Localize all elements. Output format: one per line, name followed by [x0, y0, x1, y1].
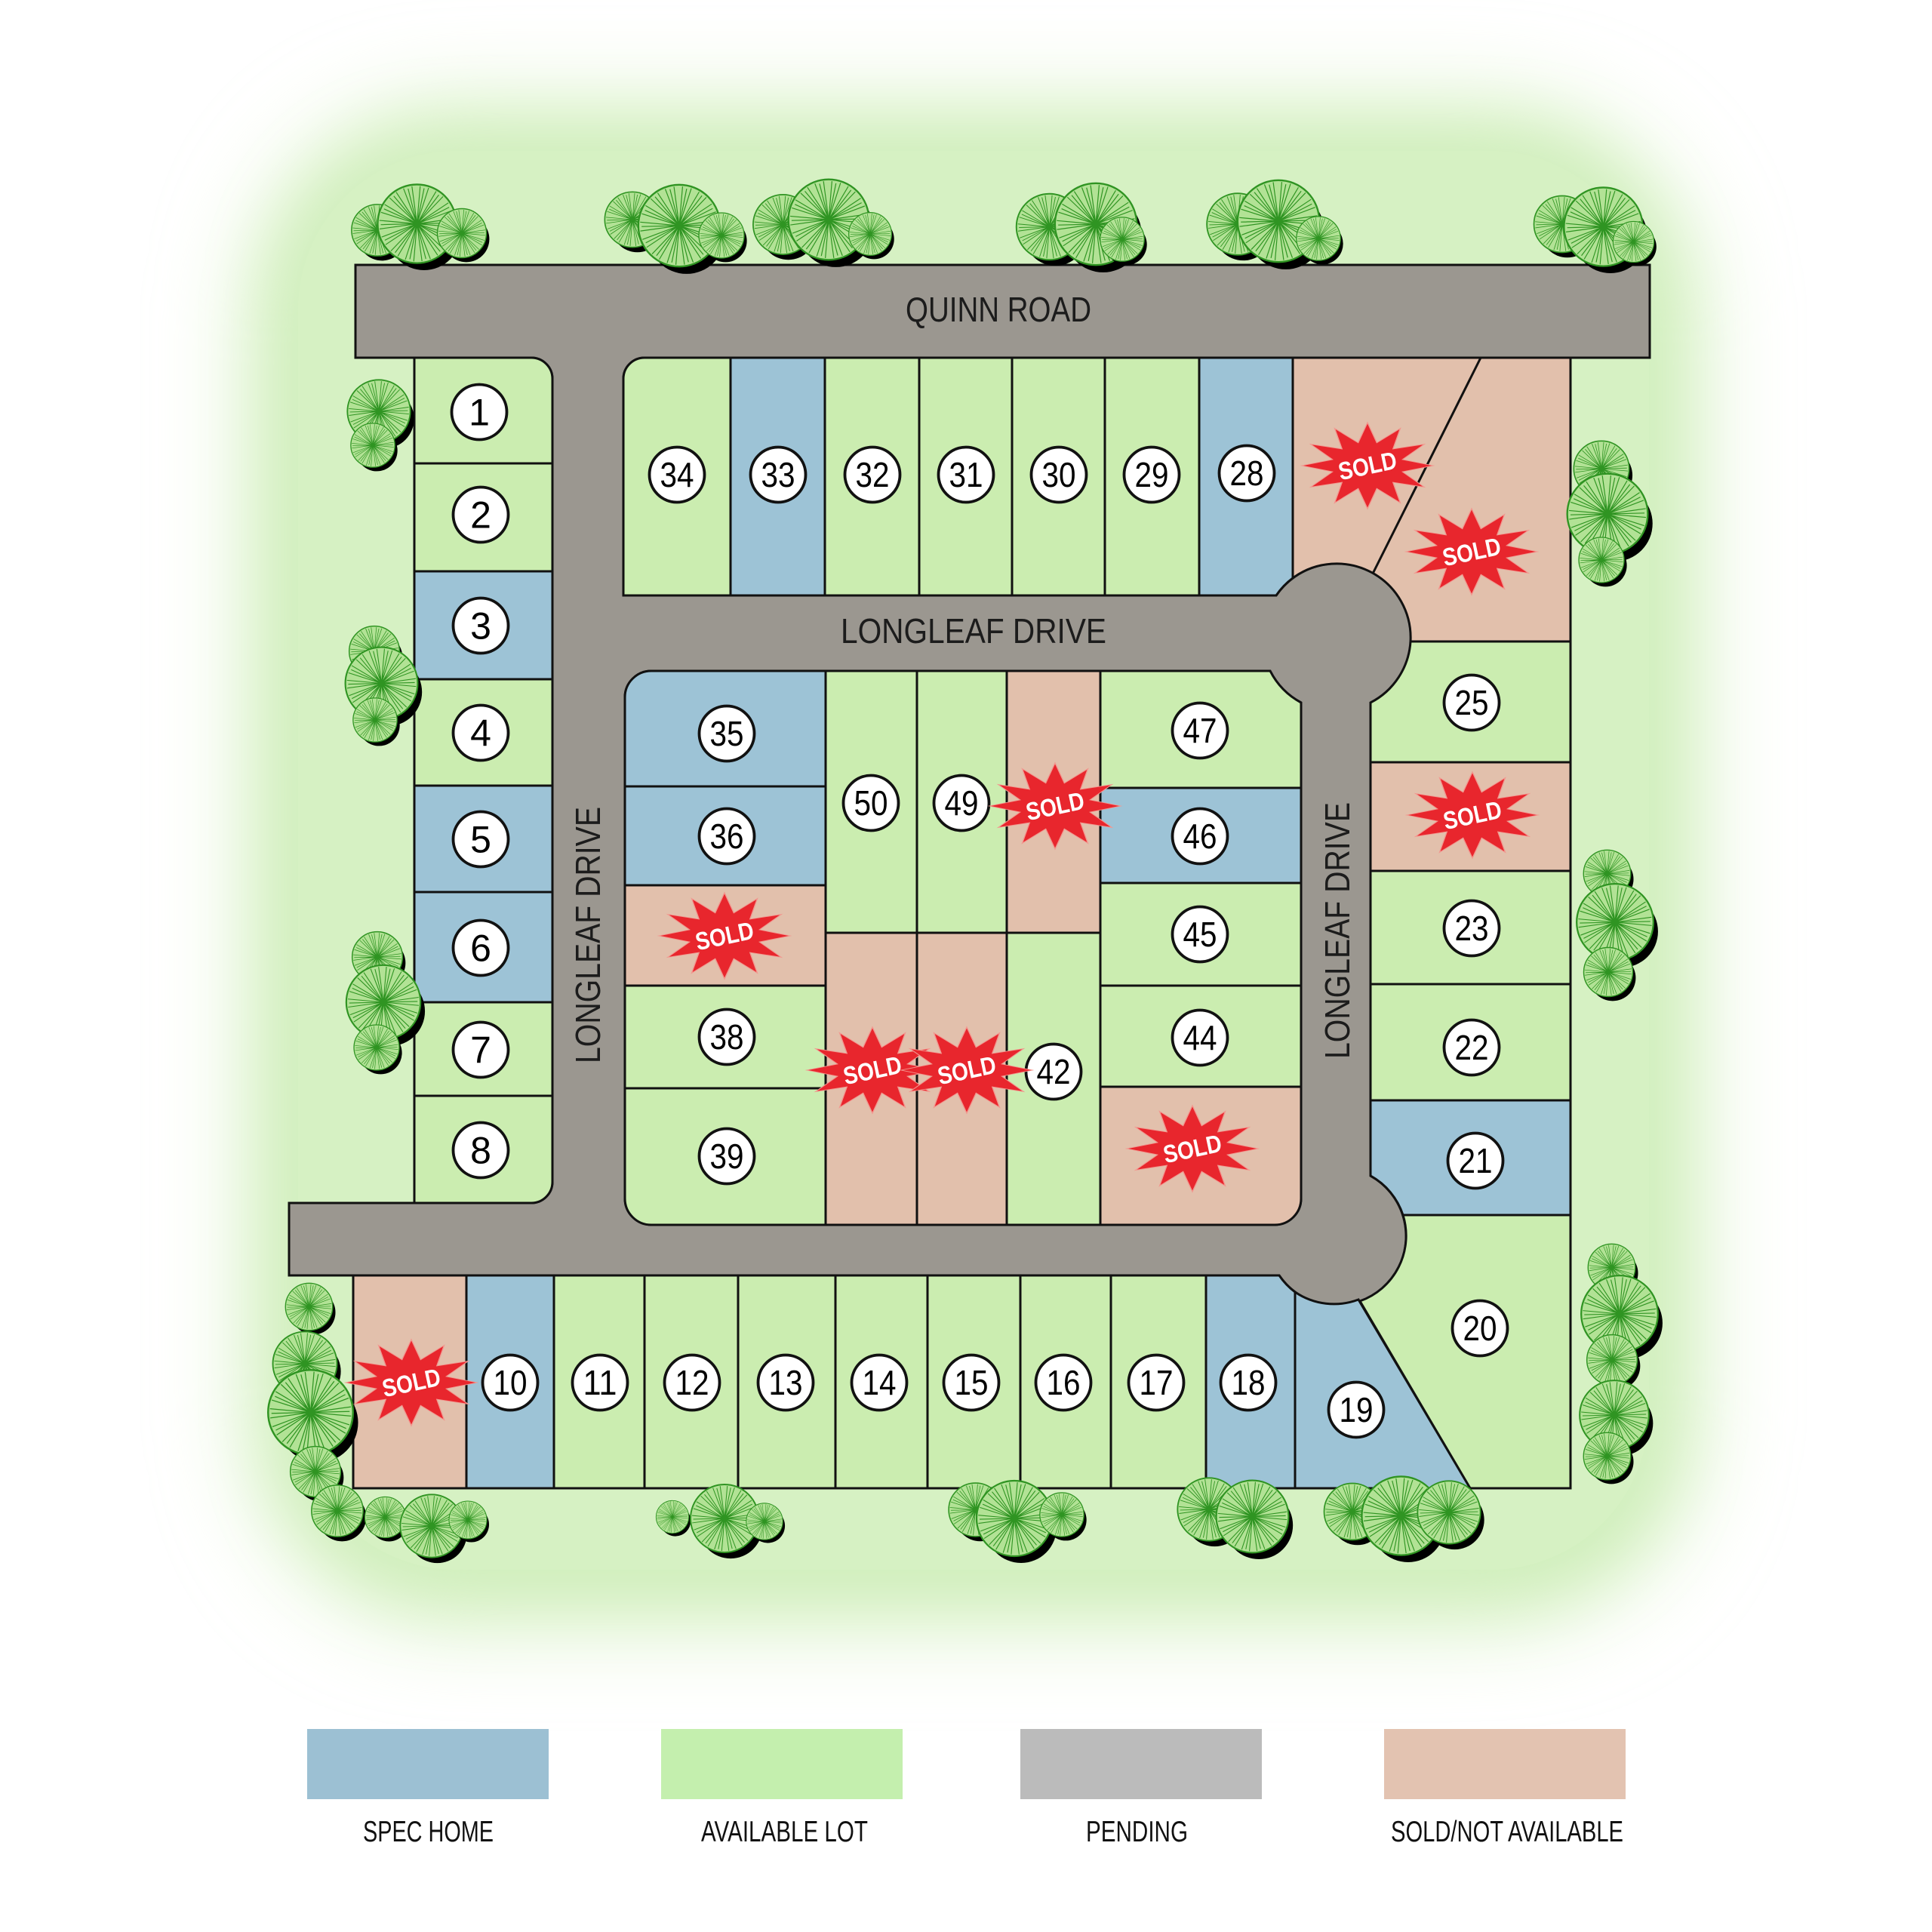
- svg-text:32: 32: [856, 455, 890, 494]
- svg-text:31: 31: [949, 455, 983, 494]
- svg-text:16: 16: [1047, 1363, 1081, 1402]
- svg-text:47: 47: [1183, 711, 1217, 750]
- svg-text:42: 42: [1037, 1052, 1071, 1091]
- svg-text:18: 18: [1232, 1363, 1266, 1402]
- svg-text:LONGLEAF DRIVE: LONGLEAF DRIVE: [841, 611, 1106, 651]
- svg-text:28: 28: [1230, 454, 1264, 493]
- svg-text:5: 5: [470, 819, 491, 861]
- svg-text:30: 30: [1042, 455, 1076, 494]
- svg-text:3: 3: [470, 605, 491, 648]
- svg-text:49: 49: [945, 783, 979, 823]
- svg-text:17: 17: [1140, 1363, 1174, 1402]
- svg-text:4: 4: [470, 712, 491, 755]
- svg-text:39: 39: [710, 1137, 744, 1176]
- svg-text:10: 10: [494, 1363, 528, 1402]
- svg-text:25: 25: [1455, 683, 1489, 722]
- svg-text:33: 33: [761, 455, 795, 494]
- svg-text:AVAILABLE LOT: AVAILABLE LOT: [701, 1816, 868, 1848]
- svg-text:44: 44: [1183, 1018, 1217, 1057]
- svg-text:SPEC HOME: SPEC HOME: [363, 1816, 494, 1848]
- svg-text:LONGLEAF DRIVE: LONGLEAF DRIVE: [568, 807, 608, 1063]
- svg-text:1: 1: [469, 392, 490, 434]
- svg-text:6: 6: [470, 928, 491, 970]
- svg-text:38: 38: [710, 1017, 744, 1057]
- svg-text:2: 2: [470, 494, 491, 537]
- svg-text:23: 23: [1455, 909, 1489, 948]
- svg-text:8: 8: [470, 1130, 491, 1172]
- svg-text:22: 22: [1455, 1028, 1489, 1067]
- svg-text:12: 12: [675, 1363, 709, 1402]
- svg-text:15: 15: [955, 1363, 989, 1402]
- svg-text:46: 46: [1183, 817, 1217, 856]
- svg-text:20: 20: [1463, 1309, 1497, 1348]
- svg-text:PENDING: PENDING: [1086, 1816, 1188, 1848]
- svg-text:21: 21: [1459, 1141, 1493, 1180]
- svg-text:7: 7: [470, 1029, 491, 1072]
- svg-text:45: 45: [1183, 915, 1217, 954]
- svg-text:13: 13: [769, 1363, 803, 1402]
- svg-text:SOLD/NOT AVAILABLE: SOLD/NOT AVAILABLE: [1391, 1816, 1623, 1848]
- svg-text:36: 36: [710, 817, 744, 856]
- svg-text:LONGLEAF DRIVE: LONGLEAF DRIVE: [1318, 802, 1357, 1059]
- svg-text:50: 50: [854, 783, 888, 823]
- svg-text:19: 19: [1340, 1390, 1374, 1429]
- svg-text:11: 11: [583, 1363, 617, 1402]
- svg-text:35: 35: [710, 714, 744, 753]
- svg-text:34: 34: [660, 455, 694, 494]
- svg-text:29: 29: [1135, 455, 1169, 494]
- svg-text:14: 14: [863, 1363, 897, 1402]
- svg-text:QUINN ROAD: QUINN ROAD: [906, 290, 1091, 329]
